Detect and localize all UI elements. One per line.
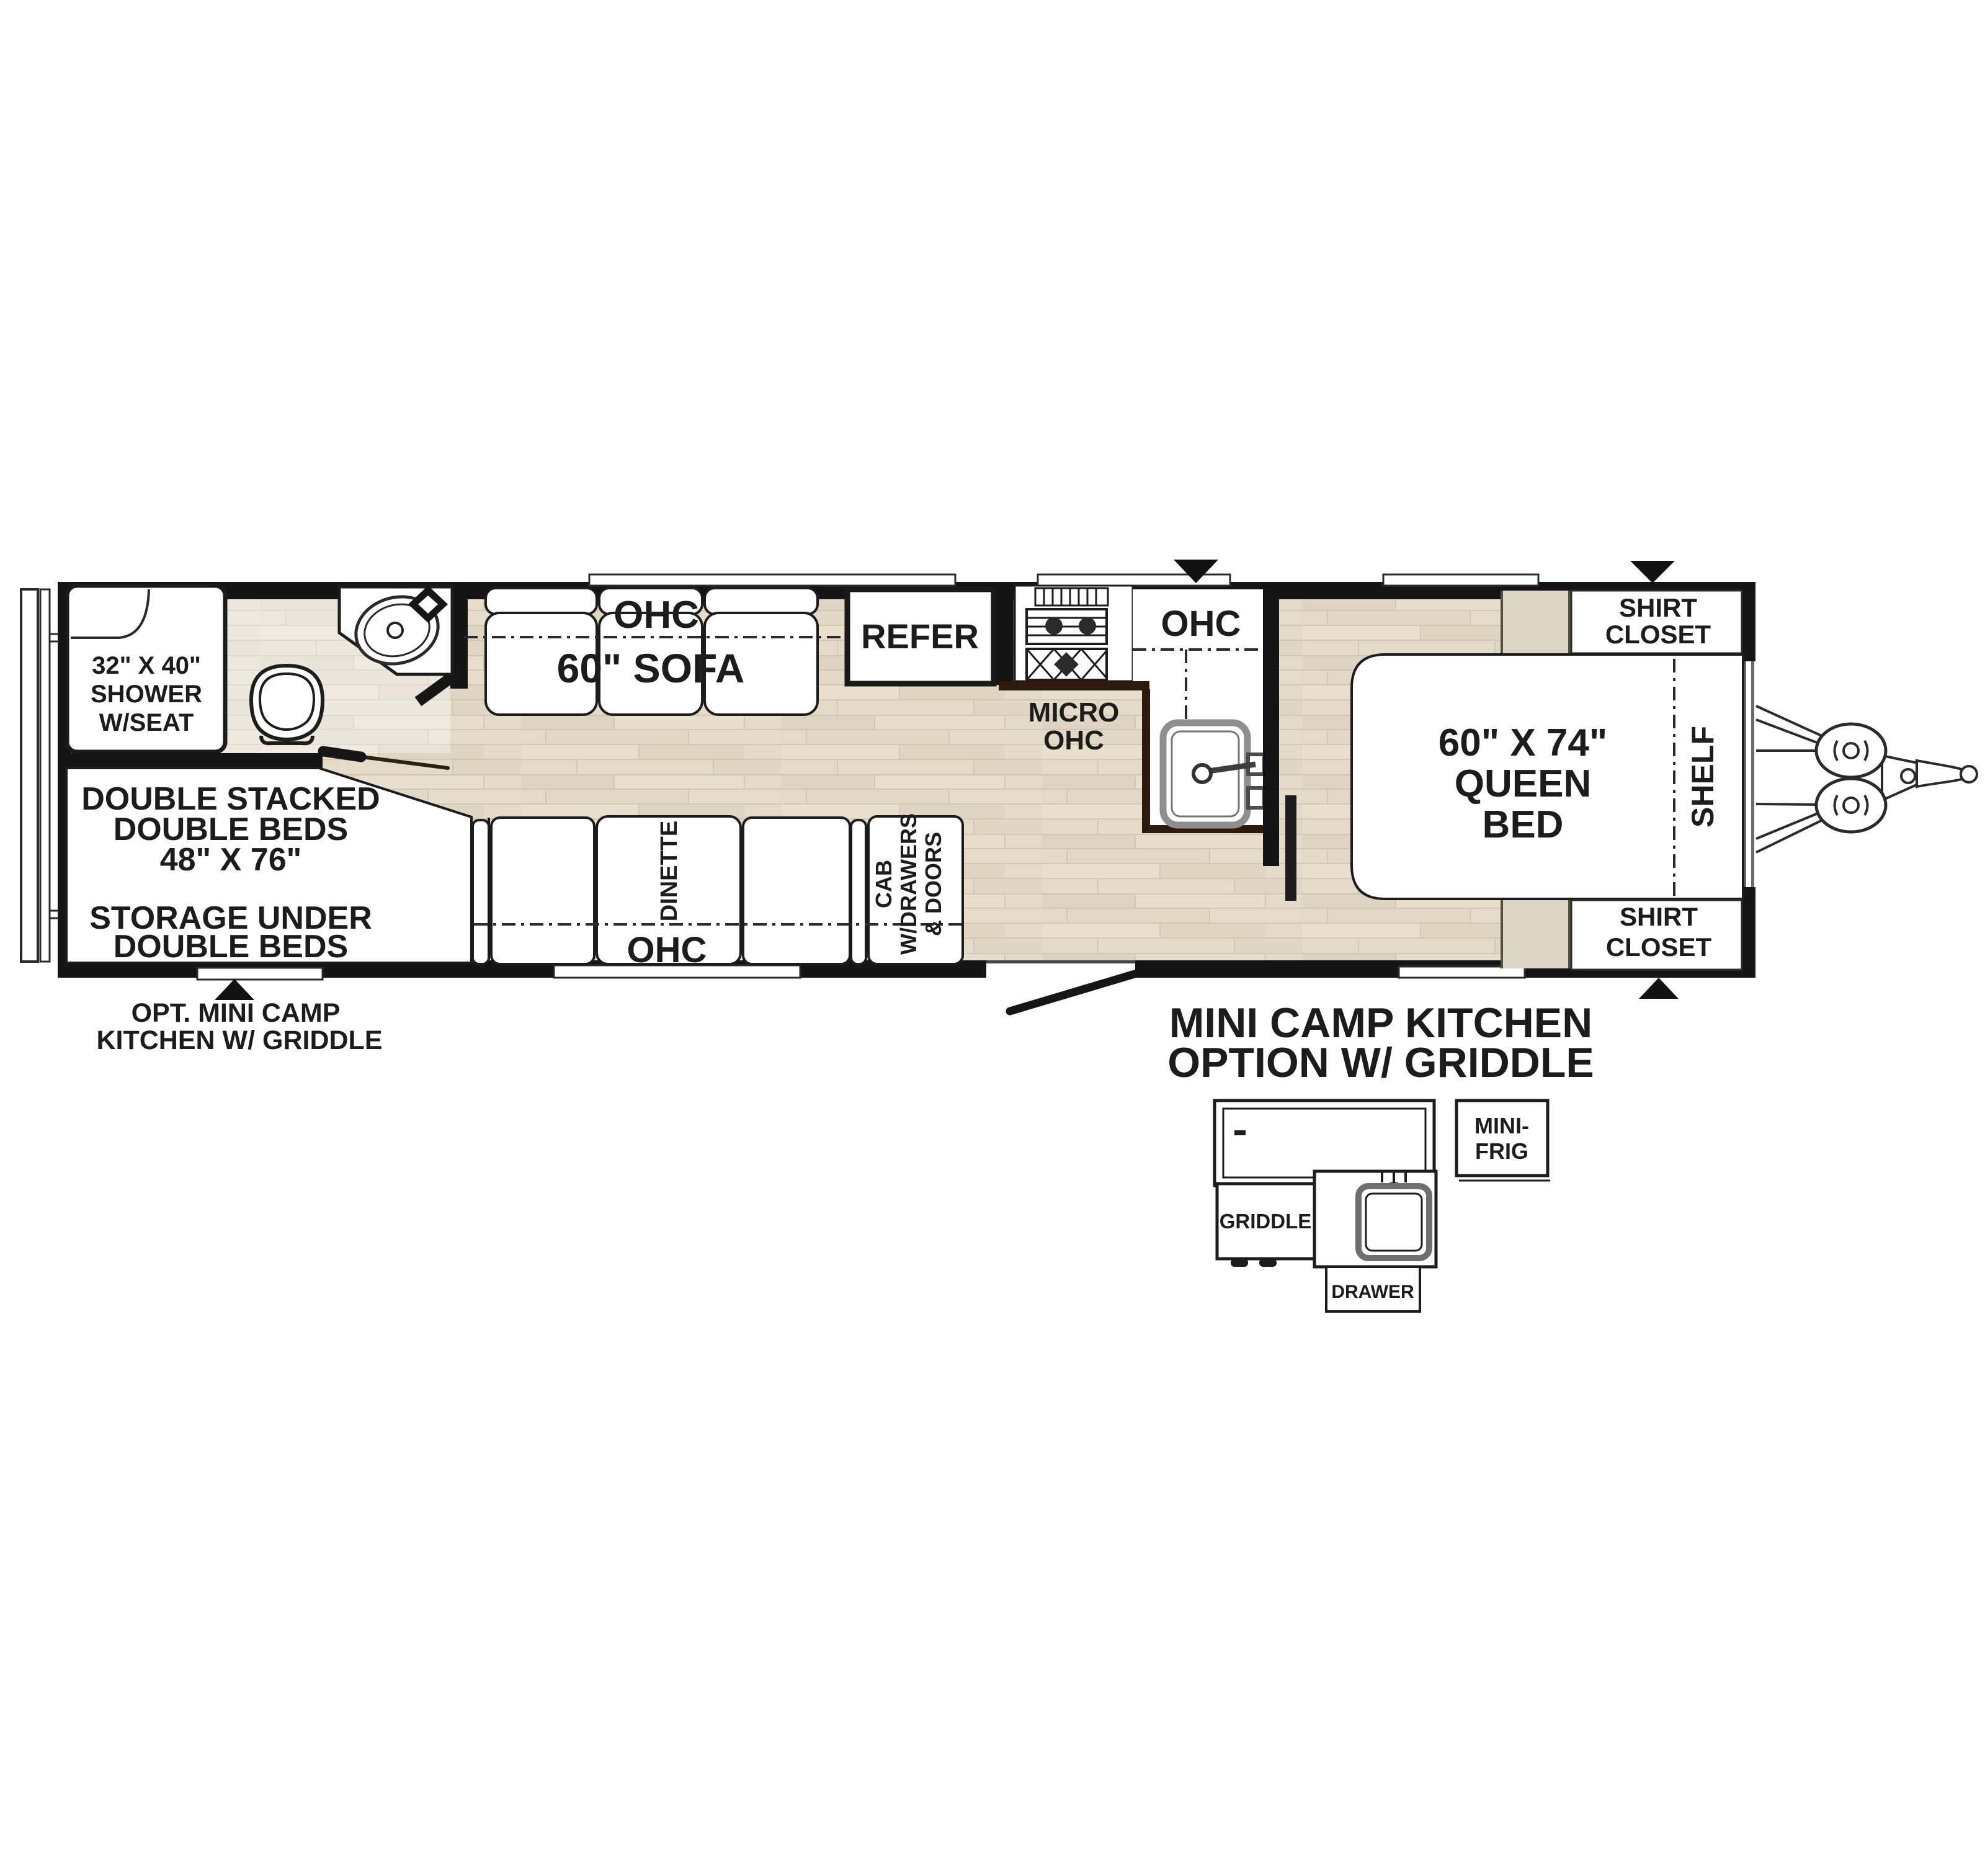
svg-text:DOUBLE BEDS: DOUBLE BEDS (114, 929, 348, 965)
svg-text:GRIDDLE: GRIDDLE (1220, 1210, 1312, 1233)
svg-text:CLOSET: CLOSET (1606, 932, 1712, 962)
svg-text:32" X 40": 32" X 40" (92, 652, 201, 679)
svg-text:BED: BED (1483, 803, 1564, 846)
svg-text:MICRO: MICRO (1028, 697, 1120, 728)
svg-text:DRAWER: DRAWER (1331, 1282, 1414, 1302)
svg-text:MINI-: MINI- (1474, 1113, 1529, 1138)
svg-text:48" X 76": 48" X 76" (160, 842, 302, 878)
svg-text:CLOSET: CLOSET (1605, 620, 1711, 649)
svg-text:OHC: OHC (1043, 725, 1104, 756)
svg-text:W/DRAWERS: W/DRAWERS (896, 813, 921, 955)
svg-text:SHIRT: SHIRT (1619, 593, 1697, 622)
svg-text:W/SEAT: W/SEAT (99, 709, 194, 736)
svg-text:60" SOFA: 60" SOFA (557, 645, 745, 691)
svg-text:OPTION W/ GRIDDLE: OPTION W/ GRIDDLE (1167, 1039, 1594, 1086)
svg-text:FRIG: FRIG (1475, 1138, 1528, 1164)
svg-text:SHIRT: SHIRT (1620, 902, 1698, 931)
svg-text:OPT. MINI CAMP: OPT. MINI CAMP (132, 998, 341, 1028)
svg-text:& DOORS: & DOORS (921, 832, 946, 936)
svg-text:SHELF: SHELF (1685, 726, 1720, 828)
svg-text:CAB: CAB (871, 860, 896, 908)
svg-text:OHC: OHC (613, 594, 699, 636)
svg-text:REFER: REFER (861, 617, 979, 656)
svg-text:OHC: OHC (1161, 604, 1241, 644)
svg-text:60" X 74": 60" X 74" (1439, 721, 1608, 764)
svg-text:KITCHEN W/ GRIDDLE: KITCHEN W/ GRIDDLE (96, 1025, 382, 1055)
svg-text:SHOWER: SHOWER (91, 681, 202, 708)
svg-text:OHC: OHC (627, 930, 707, 970)
svg-text:QUEEN: QUEEN (1455, 762, 1591, 805)
svg-text:DINETTE: DINETTE (656, 821, 682, 922)
